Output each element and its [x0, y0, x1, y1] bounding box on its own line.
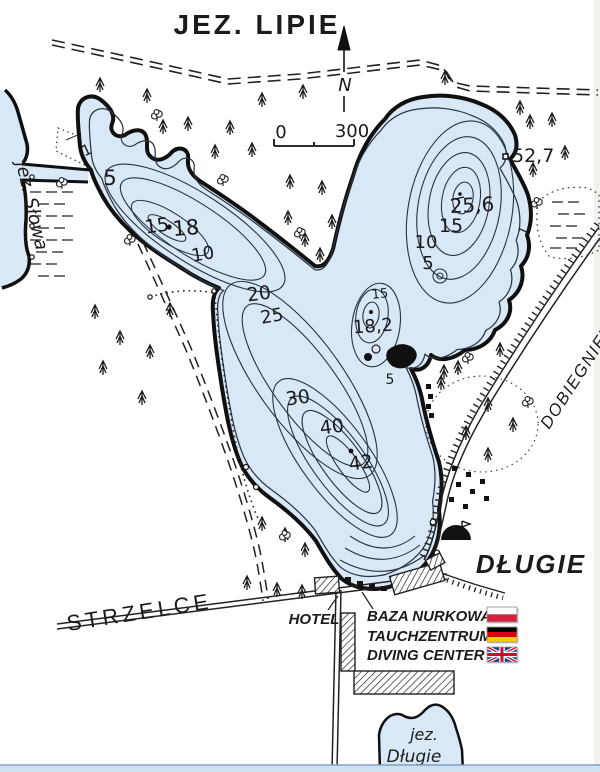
uk-flag-icon — [486, 646, 519, 664]
depth-label-5-north: 5 — [422, 253, 433, 274]
diving-center-block: BAZA NURKOWA TAUCHZENTRUM DIVING CENTER — [367, 607, 519, 664]
depth-label-5-mid: 5 — [386, 372, 395, 388]
spot-height-label: 52,7 — [512, 145, 554, 167]
depth-label-15-west: 15 — [143, 213, 170, 238]
depth-spot-18-marker — [166, 224, 171, 229]
bathymetric-map: 1 5 15 18 10 20 25 30 40 42 15 18,2 5 25… — [0, 0, 600, 772]
depth-label-25: 25 — [259, 304, 285, 329]
lake-dlugie-label-line2: Długie — [387, 747, 442, 767]
depth-label-40: 40 — [318, 414, 345, 439]
hotel-label: HOTEL — [289, 611, 340, 628]
scale-end: 300 — [335, 121, 369, 142]
depth-label-42: 42 — [347, 450, 374, 475]
roadside-building — [341, 613, 355, 671]
diving-center-line1: BAZA NURKOWA — [367, 608, 491, 625]
hotel-building — [314, 576, 339, 594]
lake-dlugie-label-line1: jez. — [408, 725, 438, 744]
depth-label-10-north: 10 — [415, 232, 438, 253]
diving-center-line2: TAUCHZENTRUM — [367, 628, 492, 645]
depth-spot-18-2-marker — [369, 310, 373, 314]
depth-spot-42-marker — [349, 449, 354, 454]
scale-start: 0 — [275, 122, 286, 143]
map-title: JEZ. LIPIE — [174, 9, 341, 40]
north-label: N — [338, 75, 351, 96]
diving-center-line3: DIVING CENTER — [367, 647, 485, 664]
depth-label-15-mid: 15 — [371, 286, 389, 303]
depth-label-18-west: 18 — [172, 215, 201, 241]
long-building — [354, 671, 454, 694]
depth-label-15-north: 15 — [439, 215, 463, 237]
depth-label-18-2: 18,2 — [352, 315, 393, 339]
depth-label-5-west: 5 — [103, 166, 116, 190]
scan-edge — [594, 0, 600, 772]
poland-flag-icon — [487, 607, 519, 624]
depth-label-10-west: 10 — [190, 242, 216, 267]
lake-dlugie-small: jez. Długie — [379, 705, 463, 772]
depth-label-20: 20 — [245, 281, 272, 306]
village-dlugie-label: DŁUGIE — [476, 549, 586, 579]
germany-flag-icon — [487, 627, 519, 644]
bottom-water-strip — [0, 765, 600, 772]
lake-lipie-map-canvas: 1 5 15 18 10 20 25 30 40 42 15 18,2 5 25… — [0, 0, 600, 772]
depth-label-30: 30 — [284, 385, 311, 410]
